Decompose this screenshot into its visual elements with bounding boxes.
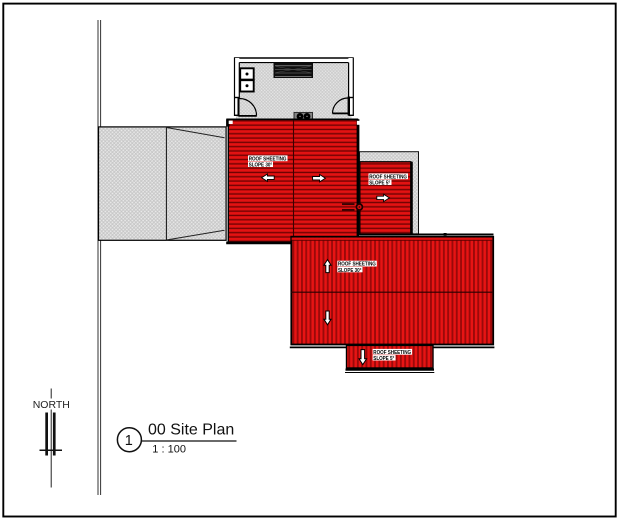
svg-text:ROOF SHEETING: ROOF SHEETING: [249, 156, 287, 162]
svg-text:SLOPE 30°: SLOPE 30°: [338, 268, 362, 274]
svg-text:ROOF SHEETING: ROOF SHEETING: [373, 350, 411, 356]
svg-text:ROOF SHEETING: ROOF SHEETING: [338, 262, 376, 268]
svg-text:NORTH: NORTH: [33, 399, 70, 411]
svg-text:1: 1: [125, 433, 133, 449]
svg-text:SLOPE 5°: SLOPE 5°: [369, 181, 390, 187]
svg-text:00 Site Plan: 00 Site Plan: [148, 422, 234, 439]
svg-text:SLOPE 5°: SLOPE 5°: [373, 356, 394, 362]
svg-text:SLOPE 30°: SLOPE 30°: [249, 163, 273, 169]
svg-text:ROOF SHEETING: ROOF SHEETING: [369, 174, 407, 180]
svg-text:1 : 100: 1 : 100: [152, 444, 186, 456]
